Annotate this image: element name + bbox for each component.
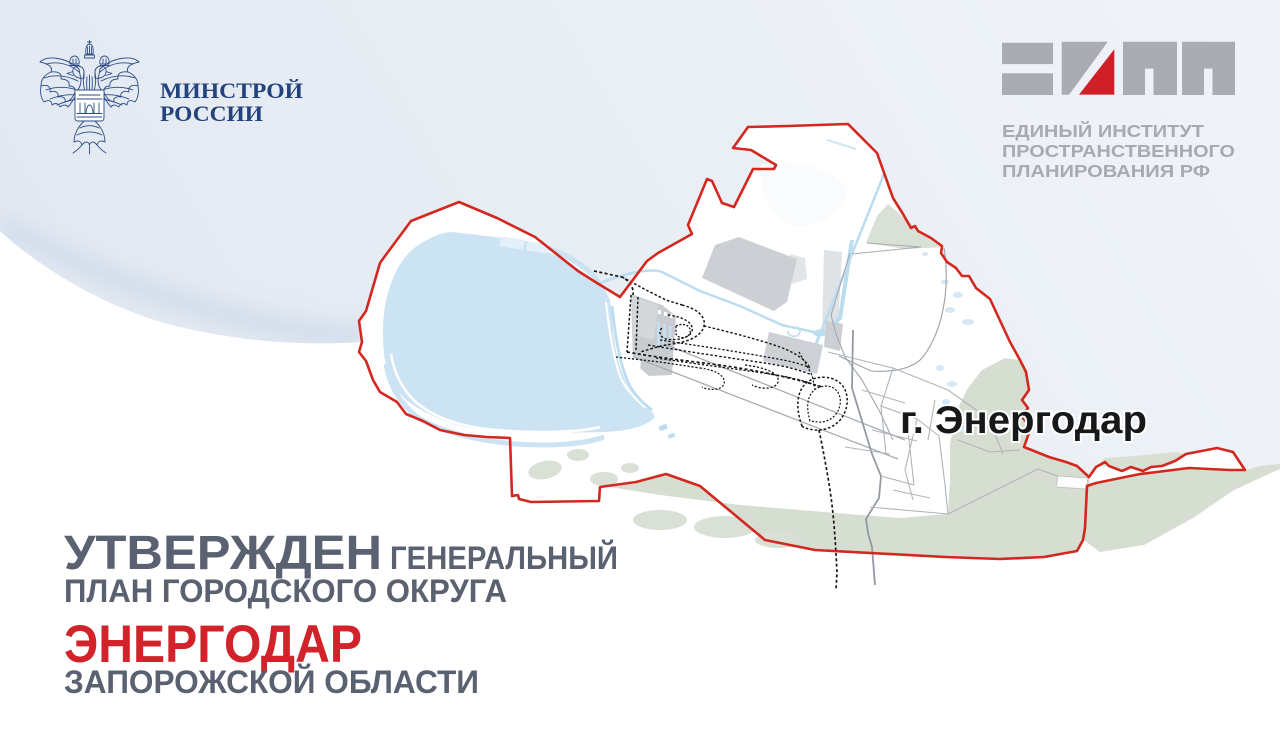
svg-text:ЗАПОРОЖСКОЙ ОБЛАСТИ: ЗАПОРОЖСКОЙ ОБЛАСТИ	[64, 664, 479, 700]
svg-text:ГЕНЕРАЛЬНЫЙ: ГЕНЕРАЛЬНЫЙ	[390, 540, 618, 576]
svg-text:ЕДИНЫЙ ИНСТИТУТ: ЕДИНЫЙ ИНСТИТУТ	[1002, 120, 1204, 141]
svg-text:ПЛАНИРОВАНИЯ РФ: ПЛАНИРОВАНИЯ РФ	[1002, 161, 1210, 181]
svg-text:г. Энергодар: г. Энергодар	[900, 399, 1147, 442]
svg-text:ПЛАН ГОРОДСКОГО ОКРУГА: ПЛАН ГОРОДСКОГО ОКРУГА	[64, 573, 507, 609]
svg-text:ПРОСТРАНСТВЕННОГО: ПРОСТРАНСТВЕННОГО	[1002, 141, 1235, 161]
svg-text:РОССИИ: РОССИИ	[160, 101, 263, 126]
svg-text:МИНСТРОЙ: МИНСТРОЙ	[160, 78, 303, 103]
